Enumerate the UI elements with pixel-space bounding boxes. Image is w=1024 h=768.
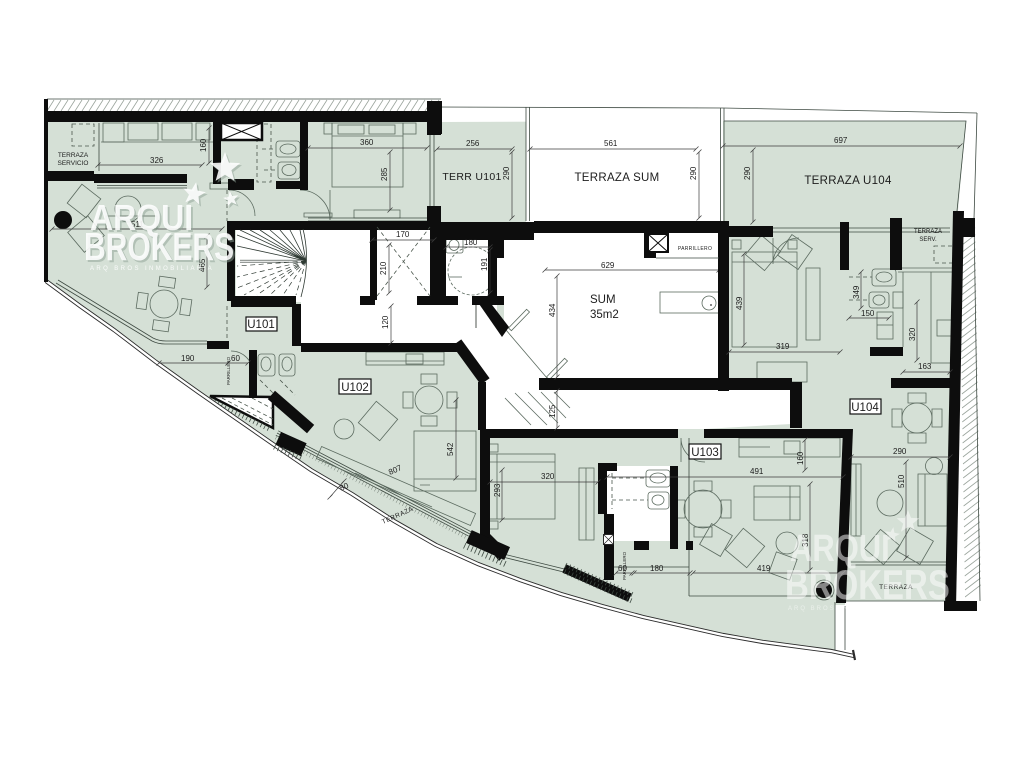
- svg-text:TERR U101: TERR U101: [442, 171, 501, 183]
- svg-text:TERRAZA: TERRAZA: [914, 229, 942, 235]
- svg-text:360: 360: [360, 138, 374, 147]
- svg-text:319: 319: [776, 342, 790, 351]
- svg-text:TERRAZA SUM: TERRAZA SUM: [574, 172, 659, 184]
- svg-text:542: 542: [446, 442, 455, 456]
- svg-text:U102: U102: [341, 382, 369, 394]
- svg-text:PARRILLERO: PARRILLERO: [226, 356, 231, 385]
- svg-text:290: 290: [502, 166, 511, 180]
- svg-text:210: 210: [379, 261, 388, 275]
- svg-text:170: 170: [396, 230, 410, 239]
- svg-text:125: 125: [548, 404, 557, 418]
- svg-text:491: 491: [750, 467, 764, 476]
- svg-text:439: 439: [735, 296, 744, 310]
- svg-text:160: 160: [796, 451, 805, 465]
- svg-text:697: 697: [834, 136, 848, 145]
- svg-text:629: 629: [601, 261, 615, 270]
- svg-text:TERRAZA U104: TERRAZA U104: [804, 175, 892, 187]
- svg-text:BROKERS: BROKERS: [84, 225, 234, 269]
- svg-text:PARRILLERO: PARRILLERO: [678, 246, 712, 252]
- svg-text:434: 434: [548, 303, 557, 317]
- svg-text:SUM: SUM: [590, 294, 616, 306]
- svg-text:285: 285: [380, 167, 389, 181]
- svg-text:290: 290: [743, 166, 752, 180]
- svg-text:BROKERS: BROKERS: [785, 561, 950, 608]
- svg-text:190: 190: [181, 354, 195, 363]
- svg-text:290: 290: [893, 447, 907, 456]
- svg-text:PARRILLERO: PARRILLERO: [622, 551, 627, 580]
- svg-text:U101: U101: [247, 319, 275, 331]
- svg-text:290: 290: [689, 166, 698, 180]
- svg-text:349: 349: [852, 285, 861, 299]
- svg-text:ARQ BROS INMOBILIARIA: ARQ BROS INMOBILIARIA: [788, 606, 904, 612]
- svg-text:320: 320: [908, 327, 917, 341]
- svg-text:191: 191: [480, 257, 489, 271]
- svg-text:U103: U103: [691, 447, 719, 459]
- svg-text:561: 561: [604, 139, 618, 148]
- svg-text:TERRAZA: TERRAZA: [58, 152, 89, 159]
- svg-text:163: 163: [918, 362, 932, 371]
- svg-text:293: 293: [493, 483, 502, 497]
- svg-text:150: 150: [861, 309, 875, 318]
- svg-text:U104: U104: [851, 402, 879, 414]
- svg-text:320: 320: [541, 472, 555, 481]
- svg-text:35m2: 35m2: [590, 309, 619, 321]
- svg-text:ARQ BROS INMOBILIARIA: ARQ BROS INMOBILIARIA: [90, 266, 214, 272]
- svg-text:160: 160: [199, 138, 208, 152]
- svg-text:120: 120: [381, 315, 390, 329]
- svg-text:SERVICIO: SERVICIO: [58, 160, 89, 167]
- svg-text:326: 326: [150, 156, 164, 165]
- svg-text:180: 180: [650, 564, 664, 573]
- svg-text:60: 60: [231, 354, 240, 363]
- svg-text:180: 180: [464, 238, 478, 247]
- svg-text:SERV.: SERV.: [919, 237, 937, 243]
- svg-text:419: 419: [757, 564, 771, 573]
- svg-text:256: 256: [466, 139, 480, 148]
- svg-text:510: 510: [897, 474, 906, 488]
